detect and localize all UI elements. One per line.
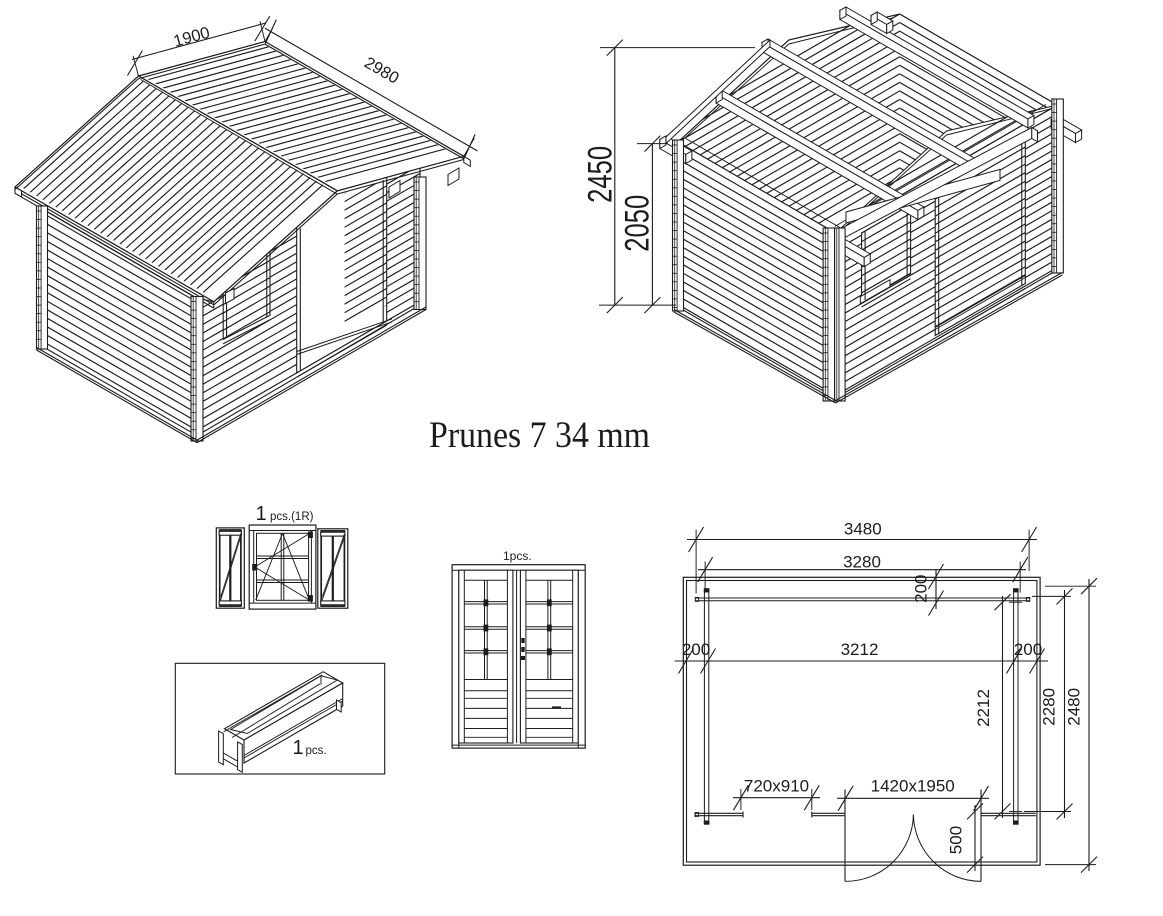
- svg-text:200: 200: [912, 575, 931, 603]
- svg-text:3212: 3212: [841, 640, 879, 659]
- svg-text:1420x1950: 1420x1950: [871, 777, 955, 796]
- svg-text:3480: 3480: [844, 519, 882, 538]
- svg-text:2980: 2980: [361, 54, 402, 88]
- svg-text:500: 500: [947, 826, 966, 854]
- svg-text:pcs.: pcs.: [306, 745, 327, 757]
- svg-text:2480: 2480: [1064, 688, 1083, 726]
- svg-text:1900: 1900: [172, 24, 212, 51]
- svg-text:1pcs.: 1pcs.: [503, 549, 532, 563]
- svg-text:2050: 2050: [619, 195, 657, 252]
- svg-text:2212: 2212: [974, 689, 993, 727]
- svg-text:Prunes 7 34 mm: Prunes 7 34 mm: [429, 415, 650, 456]
- svg-text:1: 1: [255, 503, 266, 525]
- svg-text:3280: 3280: [843, 553, 881, 572]
- svg-text:2280: 2280: [1040, 688, 1059, 726]
- svg-text:200: 200: [682, 640, 710, 659]
- svg-text:1: 1: [292, 737, 303, 759]
- svg-text:2450: 2450: [582, 146, 620, 203]
- svg-text:pcs.(1R): pcs.(1R): [270, 511, 314, 523]
- svg-text:200: 200: [1014, 640, 1042, 659]
- svg-text:720x910: 720x910: [744, 777, 809, 796]
